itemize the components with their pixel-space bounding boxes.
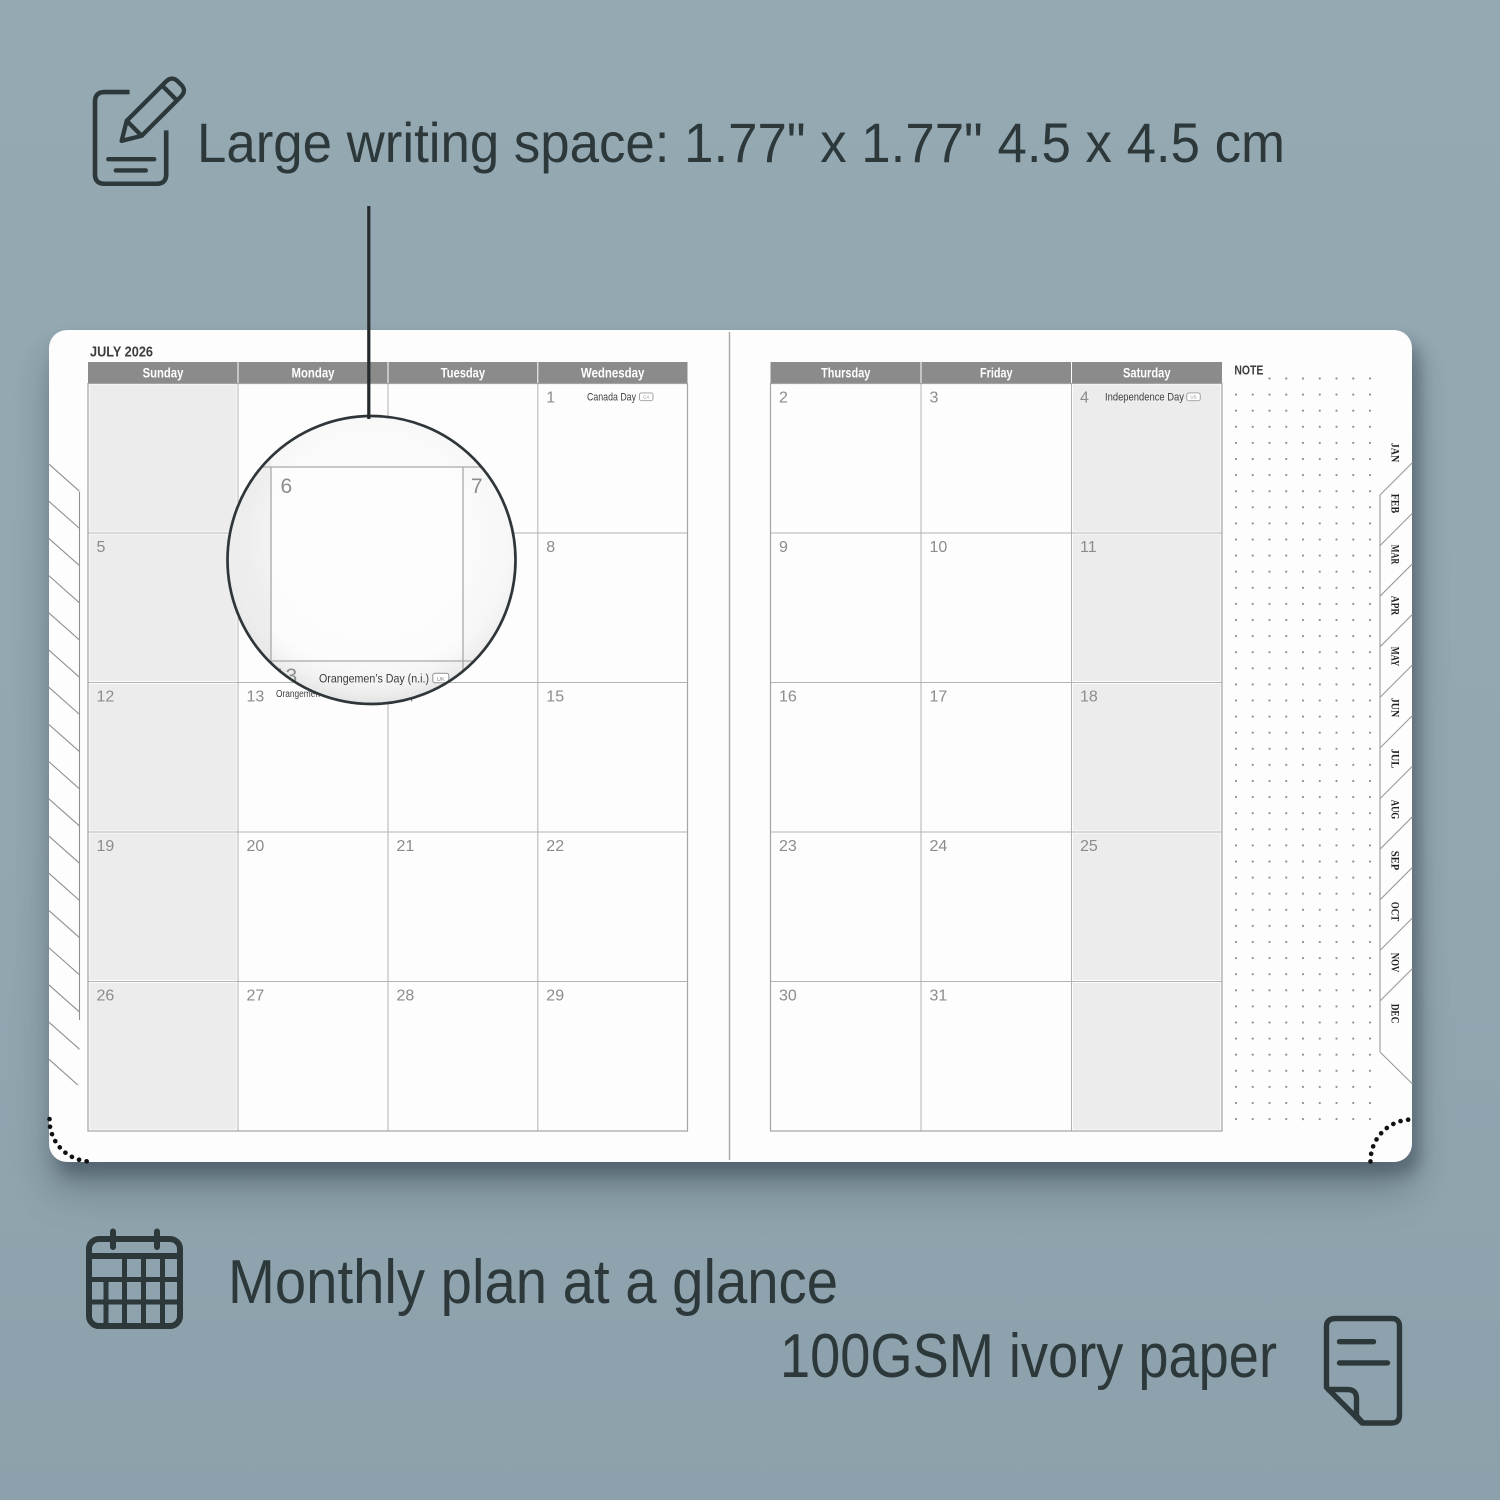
svg-text:30: 30	[779, 987, 797, 1004]
svg-text:Monday: Monday	[292, 366, 335, 381]
svg-text:Saturday: Saturday	[1123, 366, 1171, 381]
svg-text:22: 22	[546, 838, 564, 855]
svg-text:5: 5	[97, 539, 106, 556]
svg-text:17: 17	[930, 688, 948, 705]
svg-text:US: US	[1190, 394, 1196, 399]
svg-text:26: 26	[97, 987, 115, 1004]
svg-text:Wednesday: Wednesday	[581, 366, 645, 381]
svg-text:21: 21	[397, 838, 415, 855]
svg-text:4: 4	[1080, 389, 1089, 406]
svg-text:29: 29	[546, 987, 564, 1004]
svg-text:OCT: OCT	[1389, 902, 1401, 922]
svg-text:NOV: NOV	[1389, 953, 1401, 973]
svg-text:7: 7	[471, 475, 483, 498]
svg-text:12: 12	[97, 688, 115, 705]
svg-text:JAN: JAN	[1389, 443, 1401, 463]
svg-text:MAR: MAR	[1389, 545, 1401, 565]
svg-text:Orangemen’s Day (n.i.): Orangemen’s Day (n.i.)	[319, 672, 429, 686]
svg-text:Thursday: Thursday	[821, 366, 871, 381]
svg-text:31: 31	[930, 987, 948, 1004]
svg-text:DEC: DEC	[1389, 1004, 1401, 1024]
svg-text:3: 3	[930, 389, 939, 406]
svg-text:Large writing space: 1.77" x 1: Large writing space: 1.77" x 1.77" 4.5 x…	[197, 111, 1285, 174]
svg-text:Monthly plan at a glance: Monthly plan at a glance	[228, 1248, 838, 1317]
svg-text:19: 19	[97, 838, 115, 855]
svg-text:6: 6	[281, 475, 293, 498]
svg-text:AUG: AUG	[1389, 800, 1401, 820]
svg-text:16: 16	[779, 688, 797, 705]
svg-text:25: 25	[1080, 838, 1098, 855]
svg-text:1: 1	[546, 389, 555, 406]
svg-text:Sunday: Sunday	[143, 366, 184, 381]
svg-text:10: 10	[930, 539, 948, 556]
svg-text:MAY: MAY	[1389, 647, 1401, 667]
svg-text:APR: APR	[1389, 596, 1401, 616]
svg-text:15: 15	[546, 688, 564, 705]
svg-text:24: 24	[930, 838, 948, 855]
svg-text:2: 2	[779, 389, 788, 406]
svg-text:Canada Day: Canada Day	[587, 392, 636, 404]
svg-text:JUN: JUN	[1389, 698, 1401, 718]
svg-text:20: 20	[247, 838, 265, 855]
svg-text:JULY 2026: JULY 2026	[90, 344, 153, 361]
svg-text:JUL: JUL	[1389, 749, 1401, 769]
svg-text:Friday: Friday	[980, 366, 1013, 381]
svg-text:27: 27	[247, 987, 265, 1004]
svg-text:13: 13	[247, 688, 265, 705]
svg-text:28: 28	[397, 987, 415, 1004]
svg-text:Tuesday: Tuesday	[441, 366, 486, 381]
svg-text:SEP: SEP	[1389, 851, 1401, 871]
svg-text:11: 11	[1080, 539, 1097, 556]
svg-text:FEB: FEB	[1389, 494, 1401, 514]
svg-text:CA: CA	[643, 394, 649, 399]
svg-text:100GSM ivory paper: 100GSM ivory paper	[780, 1322, 1277, 1391]
svg-text:18: 18	[1080, 688, 1098, 705]
svg-text:9: 9	[779, 539, 788, 556]
svg-text:23: 23	[779, 838, 797, 855]
svg-text:8: 8	[546, 539, 555, 556]
svg-text:Independence Day: Independence Day	[1105, 392, 1184, 404]
svg-text:UK: UK	[437, 677, 445, 683]
svg-text:NOTE: NOTE	[1234, 363, 1263, 377]
